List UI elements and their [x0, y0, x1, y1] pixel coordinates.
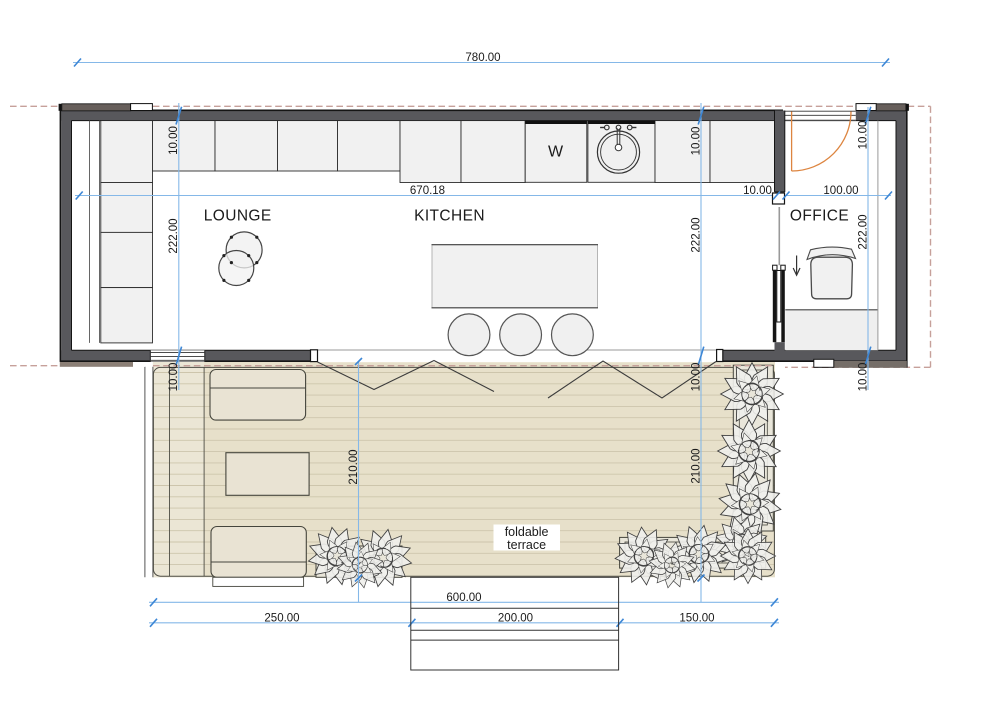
svg-text:10.00: 10.00: [743, 185, 772, 197]
svg-text:terrace: terrace: [507, 538, 546, 552]
svg-text:100.00: 100.00: [823, 185, 858, 197]
svg-text:foldable: foldable: [505, 525, 549, 539]
svg-text:210.00: 210.00: [348, 449, 360, 484]
svg-text:222.00: 222.00: [690, 217, 702, 252]
svg-text:LOUNGE: LOUNGE: [204, 208, 272, 225]
svg-text:OFFICE: OFFICE: [790, 208, 849, 225]
svg-text:250.00: 250.00: [264, 612, 299, 624]
svg-text:10.00: 10.00: [690, 127, 702, 156]
svg-text:10.00: 10.00: [168, 126, 180, 155]
svg-text:10.00: 10.00: [690, 363, 702, 392]
svg-text:670.18: 670.18: [410, 185, 445, 197]
svg-text:150.00: 150.00: [679, 612, 714, 624]
svg-text:780.00: 780.00: [465, 52, 500, 64]
svg-text:222.00: 222.00: [168, 218, 180, 253]
svg-text:222.00: 222.00: [858, 214, 870, 249]
svg-text:W: W: [548, 144, 564, 161]
svg-text:KITCHEN: KITCHEN: [414, 208, 485, 225]
svg-text:210.00: 210.00: [690, 448, 702, 483]
svg-text:10.00: 10.00: [858, 363, 870, 392]
svg-text:10.00: 10.00: [858, 121, 870, 150]
svg-text:10.00: 10.00: [168, 363, 180, 392]
